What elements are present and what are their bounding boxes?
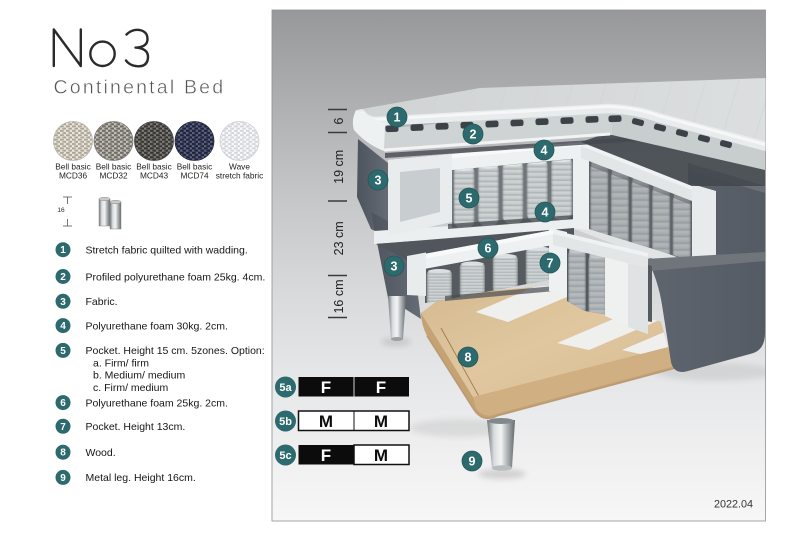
svg-text:Fabric.: Fabric. [86, 296, 118, 308]
svg-text:Wood.: Wood. [86, 447, 116, 459]
svg-text:3: 3 [391, 260, 398, 274]
svg-text:F: F [321, 378, 331, 397]
svg-text:stretch fabric: stretch fabric [216, 171, 264, 181]
svg-text:5a: 5a [279, 382, 292, 394]
svg-text:Pocket. Height 13cm.: Pocket. Height 13cm. [86, 421, 186, 433]
svg-text:5c: 5c [279, 450, 291, 462]
svg-text:23 cm: 23 cm [332, 221, 346, 255]
svg-text:Polyurethane foam 30kg. 2cm.: Polyurethane foam 30kg. 2cm. [86, 320, 228, 332]
svg-text:1: 1 [394, 111, 401, 125]
svg-text:7: 7 [60, 422, 66, 433]
svg-text:16: 16 [57, 207, 65, 214]
svg-text:a. Firm/ firm: a. Firm/ firm [93, 358, 149, 370]
svg-text:9: 9 [469, 455, 476, 469]
svg-text:Pocket. Height 15 cm. 5zones.: Pocket. Height 15 cm. 5zones. Option: [86, 345, 265, 357]
svg-text:7: 7 [547, 257, 554, 271]
svg-text:16 cm: 16 cm [332, 279, 346, 313]
svg-text:4: 4 [542, 206, 549, 220]
svg-text:M: M [374, 446, 388, 465]
svg-text:b. Medium/ medium: b. Medium/ medium [93, 369, 185, 381]
svg-text:c. Firm/ medium: c. Firm/ medium [93, 382, 169, 394]
svg-text:4: 4 [60, 321, 66, 332]
svg-text:Profiled polyurethane foam 25k: Profiled polyurethane foam 25kg. 4cm. [86, 271, 266, 283]
svg-text:8: 8 [60, 448, 66, 459]
svg-text:1: 1 [60, 245, 66, 256]
svg-text:2: 2 [60, 272, 66, 283]
svg-text:3: 3 [60, 297, 66, 308]
svg-text:5b: 5b [279, 416, 292, 428]
svg-text:MCD32: MCD32 [99, 171, 128, 181]
svg-text:MCD43: MCD43 [140, 171, 169, 181]
svg-text:F: F [321, 446, 331, 465]
svg-text:5: 5 [466, 192, 473, 206]
svg-text:9: 9 [60, 473, 66, 484]
svg-text:6: 6 [332, 117, 346, 124]
svg-text:MCD36: MCD36 [59, 171, 88, 181]
svg-text:2022.04: 2022.04 [714, 499, 753, 511]
svg-text:Metal leg. Height 16cm.: Metal leg. Height 16cm. [86, 472, 196, 484]
svg-text:5: 5 [60, 346, 66, 357]
svg-text:6: 6 [485, 242, 492, 256]
svg-text:4: 4 [541, 144, 548, 158]
svg-text:M: M [319, 412, 333, 431]
svg-text:Stretch fabric quilted with wa: Stretch fabric quilted with wadding. [86, 245, 248, 257]
svg-text:Continental Bed: Continental Bed [54, 77, 226, 99]
svg-text:6: 6 [60, 398, 66, 409]
svg-text:M: M [374, 412, 388, 431]
svg-text:8: 8 [465, 351, 472, 365]
svg-text:Polyurethane foam 25kg. 2cm.: Polyurethane foam 25kg. 2cm. [86, 397, 228, 409]
svg-text:2: 2 [470, 128, 477, 142]
svg-text:19 cm: 19 cm [332, 150, 346, 184]
svg-text:F: F [376, 378, 386, 397]
svg-text:3: 3 [375, 174, 382, 188]
svg-text:MCD74: MCD74 [180, 171, 209, 181]
